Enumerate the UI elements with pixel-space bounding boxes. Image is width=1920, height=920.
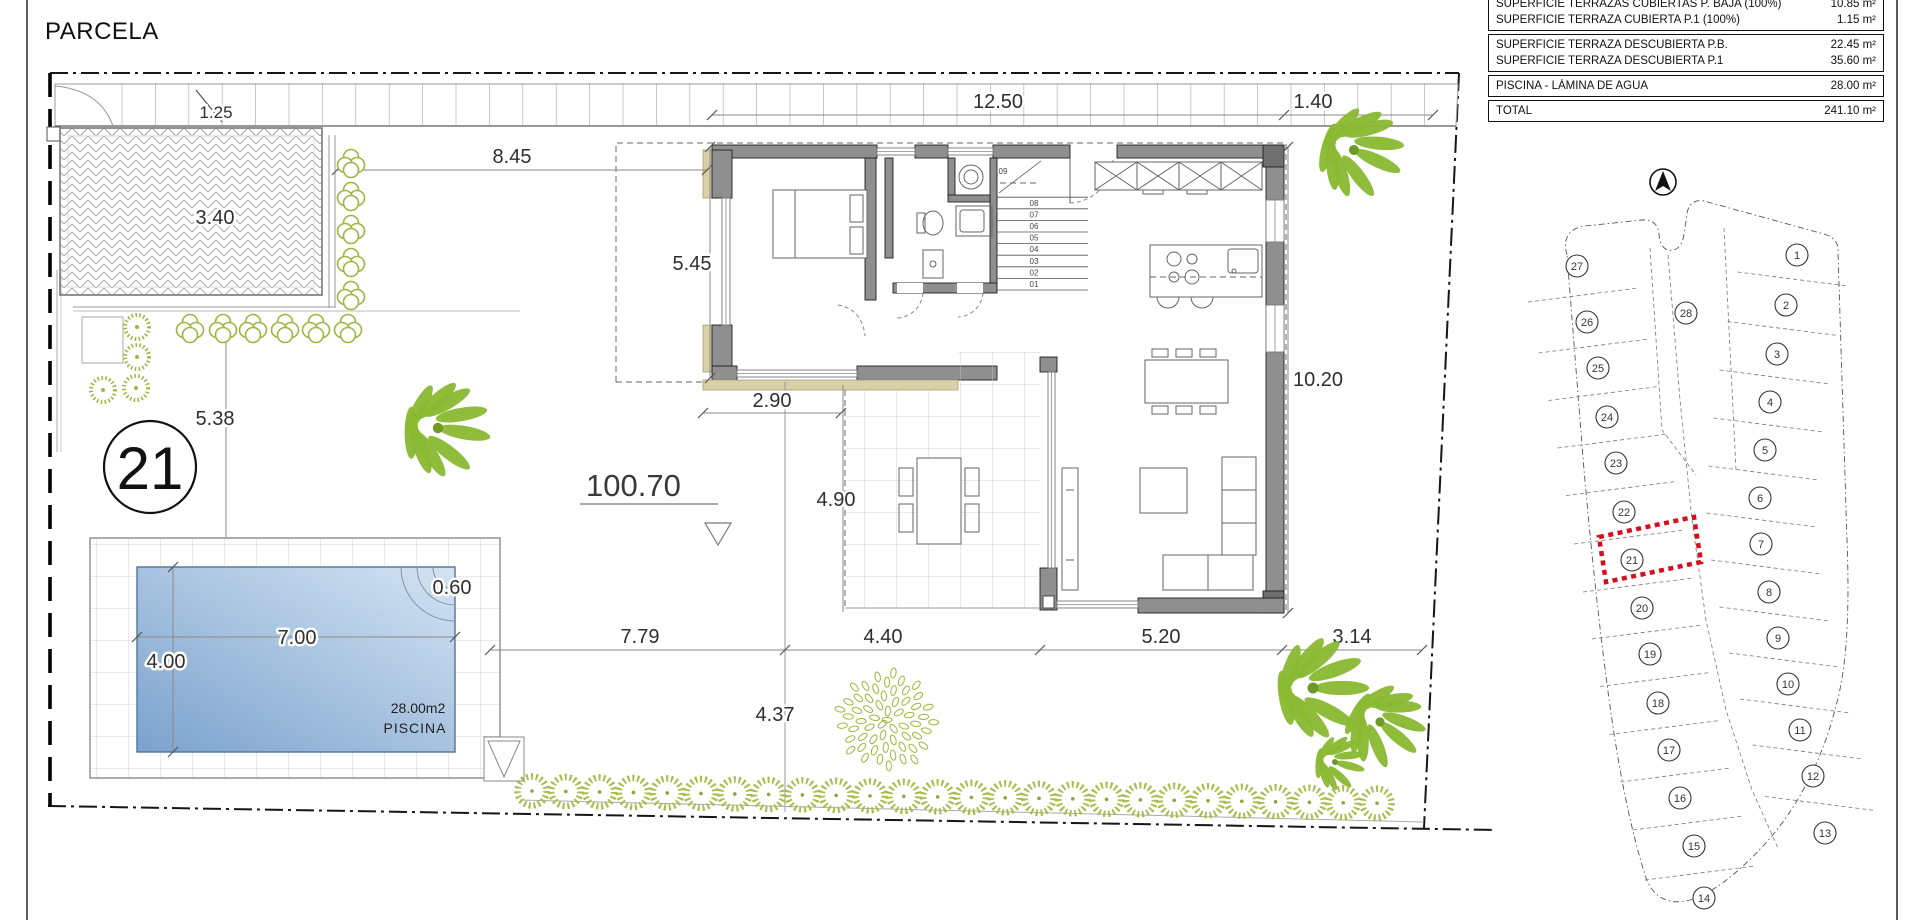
svg-text:17: 17 <box>1663 745 1675 757</box>
svg-text:6: 6 <box>1757 493 1763 505</box>
pool-area-label: 28.00m2 <box>391 700 446 716</box>
svg-text:26: 26 <box>1581 317 1593 329</box>
svg-text:3: 3 <box>1774 349 1780 361</box>
svg-text:12: 12 <box>1807 771 1819 783</box>
dim-rear-garden: 4.37 <box>756 704 795 726</box>
coffee-table <box>1140 468 1187 513</box>
svg-text:06: 06 <box>1030 222 1039 231</box>
svg-text:04: 04 <box>1030 245 1039 254</box>
svg-text:25: 25 <box>1592 363 1604 375</box>
staircase: 010203040506070809 <box>997 161 1088 290</box>
dim-bottom-c: 5.20 <box>1142 626 1181 648</box>
location-minimap: 2726252423222120191817161514123456789101… <box>1528 169 1875 909</box>
site-plan-sheet: PARCELA SUPERFICIE TERRAZAS CUBIERTAS P.… <box>0 0 1920 920</box>
svg-text:21: 21 <box>1626 555 1638 567</box>
svg-text:24: 24 <box>1601 412 1613 424</box>
svg-text:02: 02 <box>1030 268 1039 277</box>
svg-text:1: 1 <box>1794 250 1800 262</box>
highlighted-lot-21 <box>1599 517 1701 582</box>
svg-text:18: 18 <box>1652 698 1664 710</box>
svg-text:21: 21 <box>117 435 184 502</box>
svg-text:28: 28 <box>1680 308 1692 320</box>
level-marker: 100.70 <box>580 468 731 545</box>
driveway <box>60 128 520 311</box>
dim-bottom-b: 4.40 <box>864 626 903 648</box>
dim-pool-steps: 0.60 <box>433 577 472 599</box>
svg-text:8: 8 <box>1766 587 1772 599</box>
dim-house-left: 5.45 <box>673 253 712 275</box>
svg-text:19: 19 <box>1644 649 1656 661</box>
svg-text:08: 08 <box>1030 199 1039 208</box>
dim-driveway: 3.40 <box>196 207 235 229</box>
svg-text:5: 5 <box>1762 445 1768 457</box>
living-room <box>1062 457 1256 590</box>
dim-house-right: 10.20 <box>1293 369 1343 391</box>
svg-text:05: 05 <box>1030 234 1039 243</box>
utility-pad <box>82 317 123 363</box>
svg-text:4: 4 <box>1767 397 1773 409</box>
large-shrub <box>834 668 938 771</box>
svg-text:22: 22 <box>1618 507 1630 519</box>
svg-text:01: 01 <box>1030 280 1039 289</box>
dining-set <box>1145 349 1228 414</box>
kitchen-island <box>1150 245 1262 308</box>
svg-text:07: 07 <box>1030 210 1039 219</box>
pool-name-label: PISCINA <box>383 720 446 736</box>
svg-text:100.70: 100.70 <box>586 468 681 503</box>
svg-text:2: 2 <box>1783 300 1789 312</box>
minimap-outline <box>1566 201 1848 902</box>
svg-text:14: 14 <box>1698 893 1710 905</box>
site-plan-drawing: 28.00m2 PISCINA 21 100.70 <box>0 0 1920 920</box>
svg-text:09: 09 <box>999 167 1008 176</box>
dim-house-top-right: 1.40 <box>1294 91 1333 113</box>
dim-bottom-a: 7.79 <box>621 626 660 648</box>
bedroom-bed <box>773 190 867 258</box>
tv-unit <box>1062 468 1078 590</box>
dim-sidewalk: 1.25 <box>199 103 232 122</box>
dim-porch: 2.90 <box>753 390 792 412</box>
dim-front-garden: 8.45 <box>493 146 532 168</box>
plot-badge: 21 <box>104 421 196 513</box>
dim-pool-width: 4.00 <box>147 651 186 673</box>
svg-text:20: 20 <box>1636 603 1648 615</box>
svg-text:7: 7 <box>1758 539 1764 551</box>
north-arrow-icon <box>1650 169 1676 195</box>
svg-text:9: 9 <box>1775 633 1781 645</box>
dim-side-garden: 5.38 <box>196 408 235 430</box>
hedge-row <box>518 777 1392 818</box>
svg-text:27: 27 <box>1571 261 1583 273</box>
svg-text:13: 13 <box>1819 828 1831 840</box>
svg-text:23: 23 <box>1610 458 1622 470</box>
pool-spillway <box>484 737 524 781</box>
svg-text:11: 11 <box>1794 725 1805 737</box>
kitchen <box>1095 162 1262 308</box>
terrace <box>845 352 1040 608</box>
svg-text:10: 10 <box>1782 679 1794 691</box>
svg-text:16: 16 <box>1674 793 1686 805</box>
dim-pool-length: 7.00 <box>278 627 317 649</box>
svg-text:03: 03 <box>1030 257 1039 266</box>
dim-house-top: 12.50 <box>973 91 1023 113</box>
svg-text:15: 15 <box>1688 841 1700 853</box>
dim-terrace: 4.90 <box>817 489 856 511</box>
